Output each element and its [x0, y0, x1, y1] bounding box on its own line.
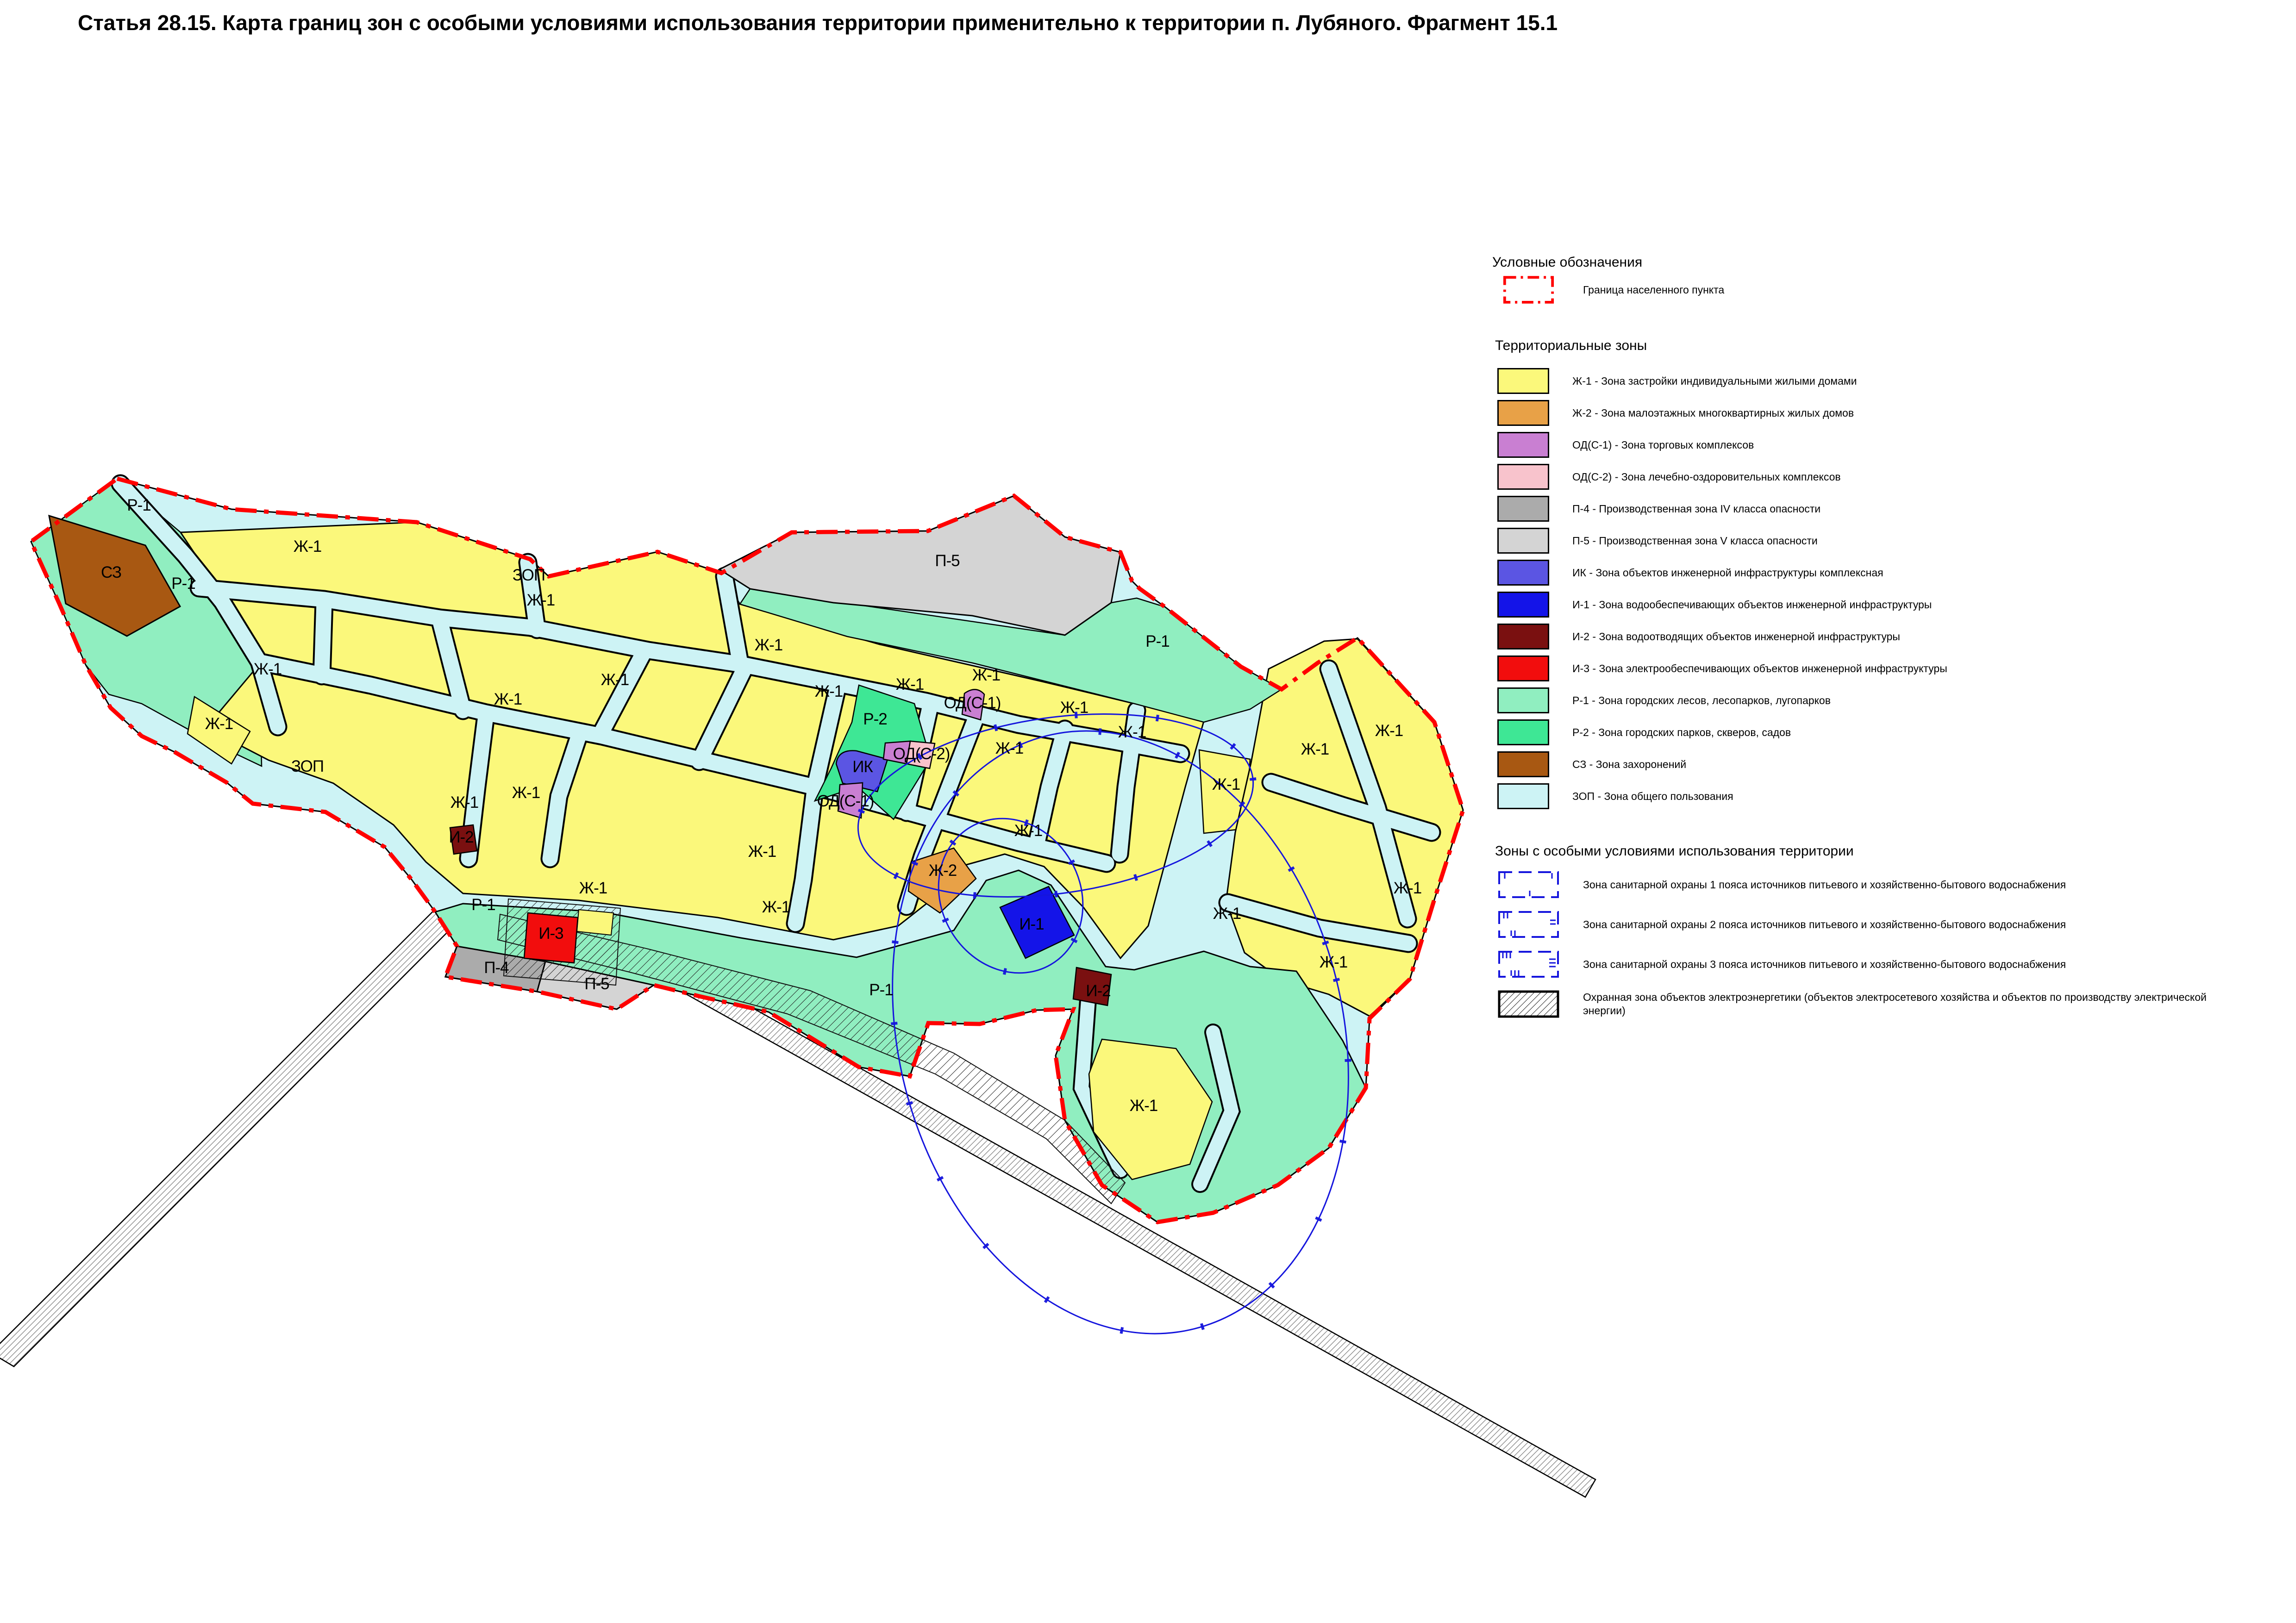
legend-zone-label: СЗ - Зона захоронений: [1572, 758, 1686, 771]
legend-special-header: Зоны с особыми условиями использования т…: [1495, 843, 1854, 859]
legend-zone-label: Ж-2 - Зона малоэтажных многоквартирных ж…: [1572, 407, 1854, 419]
zone-zop-swatch: [1497, 783, 1549, 809]
legend-zone-item: ОД(С-1) - Зона торговых комплексов: [1497, 432, 1754, 458]
zone-zh1-swatch: [1497, 368, 1549, 394]
map-zone-label-Ж-1: Ж-1: [579, 879, 607, 897]
map-zone-label-И-2: И-2: [1086, 982, 1110, 1000]
legend-item-label: Граница населенного пункта: [1583, 284, 1724, 296]
road-strip-southwest: [0, 910, 457, 1367]
legend-zone-label: И-1 - Зона водообеспечивающих объектов и…: [1572, 599, 1932, 611]
zone-r2-swatch: [1497, 719, 1549, 745]
legend-zone-label: П-5 - Производственная зона V класса опа…: [1572, 535, 1818, 547]
map-zone-label-Ж-1: Ж-1: [450, 793, 478, 811]
legend-zone-label: Р-1 - Зона городских лесов, лесопарков, …: [1572, 694, 1831, 707]
map-zone-label-Ж-1: Ж-1: [1301, 740, 1329, 758]
legend-zone-label: ОД(С-2) - Зона лечебно-оздоровительных к…: [1572, 471, 1841, 483]
map-zone-label-Р-1: Р-1: [1145, 632, 1169, 650]
zone-r1-swatch: [1497, 687, 1549, 713]
settlement-boundary-icon: [1497, 275, 1560, 304]
legend-zone-label: Ж-1 - Зона застройки индивидуальными жил…: [1572, 375, 1857, 387]
sanitary-belt-2-icon: [1497, 910, 1560, 939]
sanitary-belt-1-icon: [1497, 870, 1560, 899]
legend-zones-header: Территориальные зоны: [1495, 338, 1647, 354]
legend-header: Условные обозначения: [1492, 255, 1642, 270]
document-page: Статья 28.15. Карта границ зон с особыми…: [0, 0, 2296, 1623]
zoning-map: Р-1Ж-1ЗОПЖ-1СЗР-1П-5Ж-1Ж-1Р-1Ж-1Ж-1Ж-1Ж-…: [0, 0, 2296, 1623]
legend-zone-item: Р-2 - Зона городских парков, скверов, са…: [1497, 719, 1791, 745]
map-zone-label-Р-1: Р-1: [471, 896, 495, 914]
legend-zone-label: Р-2 - Зона городских парков, скверов, са…: [1572, 726, 1791, 739]
sanitary-belt-3-icon: [1497, 950, 1560, 979]
map-zone-label-ОД(С-1): ОД(С-1): [944, 694, 1001, 712]
legend-zone-item: И-1 - Зона водообеспечивающих объектов и…: [1497, 592, 1932, 618]
zone-zh2-swatch: [1497, 400, 1549, 426]
legend-zone-item: Р-1 - Зона городских лесов, лесопарков, …: [1497, 687, 1831, 713]
map-zone-label-Ж-1: Ж-1: [755, 636, 782, 654]
map-zone-label-Ж-1: Ж-1: [1130, 1097, 1157, 1115]
legend-special-label: Зона санитарной охраны 3 пояса источнико…: [1583, 958, 2240, 971]
map-zone-label-П-5: П-5: [935, 552, 959, 570]
legend-zone-label: ИК - Зона объектов инженерной инфраструк…: [1572, 567, 1883, 579]
map-zone-label-Ж-1: Ж-1: [1375, 722, 1403, 740]
legend-special-label: Охранная зона объектов электроэнергетики…: [1583, 991, 2240, 1017]
legend-zone-label: П-4 - Производственная зона IV класса оп…: [1572, 503, 1821, 515]
legend-zone-item: И-3 - Зона электрообеспечивающих объекто…: [1497, 655, 1947, 681]
map-zone-label-ОД(С-1): ОД(С-1): [817, 792, 874, 810]
zone-i2-swatch: [1497, 624, 1549, 649]
map-zone-label-Ж-1: Ж-1: [1320, 953, 1347, 971]
map-zone-label-Ж-1: Ж-1: [815, 682, 843, 700]
map-zone-label-Ж-1: Ж-1: [512, 784, 540, 802]
map-zone-label-Ж-1: Ж-1: [294, 537, 321, 556]
map-zone-label-Ж-2: Ж-2: [929, 861, 957, 880]
map-zone-label-Ж-1: Ж-1: [601, 671, 629, 689]
zone-i1-swatch: [1497, 592, 1549, 618]
map-zone-label-ОД(С-2): ОД(С-2): [893, 745, 950, 763]
legend-zone-item: ИК - Зона объектов инженерной инфраструк…: [1497, 560, 1883, 586]
legend-zone-item: П-4 - Производственная зона IV класса оп…: [1497, 496, 1821, 522]
zone-i3-swatch: [1497, 655, 1549, 681]
zone-zh1-i3-notch: [577, 910, 613, 935]
legend-special-item: Зона санитарной охраны 1 пояса источнико…: [1497, 870, 2240, 899]
map-zone-label-Ж-1: Ж-1: [1118, 723, 1146, 741]
map-zone-label-ЗОП: ЗОП: [291, 757, 324, 775]
legend-zone-label: ЗОП - Зона общего пользования: [1572, 790, 1733, 803]
legend-special-label: Зона санитарной охраны 2 пояса источнико…: [1583, 918, 2240, 931]
legend-zone-item: Ж-2 - Зона малоэтажных многоквартирных ж…: [1497, 400, 1854, 426]
map-zone-label-Ж-1: Ж-1: [896, 675, 924, 693]
map-zone-label-И-1: И-1: [1019, 915, 1044, 933]
map-zone-label-Ж-1: Ж-1: [494, 690, 522, 708]
zone-ods1-swatch: [1497, 432, 1549, 458]
map-zone-label-Ж-1: Ж-1: [1014, 822, 1042, 840]
legend-zone-item: ОД(С-2) - Зона лечебно-оздоровительных к…: [1497, 464, 1841, 490]
legend-zone-item: СЗ - Зона захоронений: [1497, 751, 1686, 777]
map-zone-label-И-3: И-3: [538, 924, 563, 943]
legend-zone-item: ЗОП - Зона общего пользования: [1497, 783, 1733, 809]
legend-special-label: Зона санитарной охраны 1 пояса источнико…: [1583, 878, 2240, 892]
zone-p4-swatch: [1497, 496, 1549, 522]
map-zone-label-Ж-1: Ж-1: [1394, 879, 1421, 897]
legend-zone-label: ОД(С-1) - Зона торговых комплексов: [1572, 439, 1754, 451]
legend-special-item: Охранная зона объектов электроэнергетики…: [1497, 990, 2240, 1018]
zone-p5-swatch: [1497, 528, 1549, 554]
map-zone-label-Р-1: Р-1: [127, 496, 150, 514]
map-zone-label-Ж-1: Ж-1: [1212, 775, 1240, 793]
map-zone-label-Ж-1: Ж-1: [762, 898, 790, 916]
map-zone-label-И-2: И-2: [449, 828, 473, 846]
legend-special-item: Зона санитарной охраны 3 пояса источнико…: [1497, 950, 2240, 979]
legend-zone-item: П-5 - Производственная зона V класса опа…: [1497, 528, 1818, 554]
legend-item-boundary: Граница населенного пункта: [1497, 275, 1724, 304]
map-zone-label-Ж-1: Ж-1: [972, 666, 1000, 684]
map-zone-label-Ж-1: Ж-1: [1060, 699, 1088, 717]
map-zone-label-ЗОП: ЗОП: [513, 566, 545, 584]
map-zone-label-Ж-1: Ж-1: [995, 739, 1023, 757]
map-zone-label-Р-1: Р-1: [171, 574, 195, 593]
map-zone-label-П-4: П-4: [484, 959, 509, 977]
map-zone-label-Ж-1: Ж-1: [527, 591, 555, 609]
legend-special-item: Зона санитарной охраны 2 пояса источнико…: [1497, 910, 2240, 939]
legend-zone-item: Ж-1 - Зона застройки индивидуальными жил…: [1497, 368, 1857, 394]
legend-zone-label: И-3 - Зона электрообеспечивающих объекто…: [1572, 662, 1947, 675]
map-zone-label-Р-2: Р-2: [863, 710, 887, 728]
map-zone-label-Ж-1: Ж-1: [748, 843, 776, 861]
power-protection-hatch-icon: [1497, 990, 1560, 1018]
legend-zone-label: И-2 - Зона водоотводящих объектов инжене…: [1572, 630, 1900, 643]
map-zone-label-П-5: П-5: [584, 975, 609, 993]
map-zone-label-Ж-1: Ж-1: [254, 660, 282, 678]
map-zone-label-ИК: ИК: [852, 758, 873, 776]
legend-zone-item: И-2 - Зона водоотводящих объектов инжене…: [1497, 624, 1900, 649]
map-zone-label-Ж-1: Ж-1: [205, 715, 233, 733]
map-zone-label-Ж-1: Ж-1: [1213, 905, 1241, 923]
zone-ods2-swatch: [1497, 464, 1549, 490]
zone-sz-swatch: [1497, 751, 1549, 777]
zone-ik-swatch: [1497, 560, 1549, 586]
map-zone-label-СЗ: СЗ: [101, 563, 121, 581]
map-zone-label-Р-1: Р-1: [869, 981, 893, 999]
